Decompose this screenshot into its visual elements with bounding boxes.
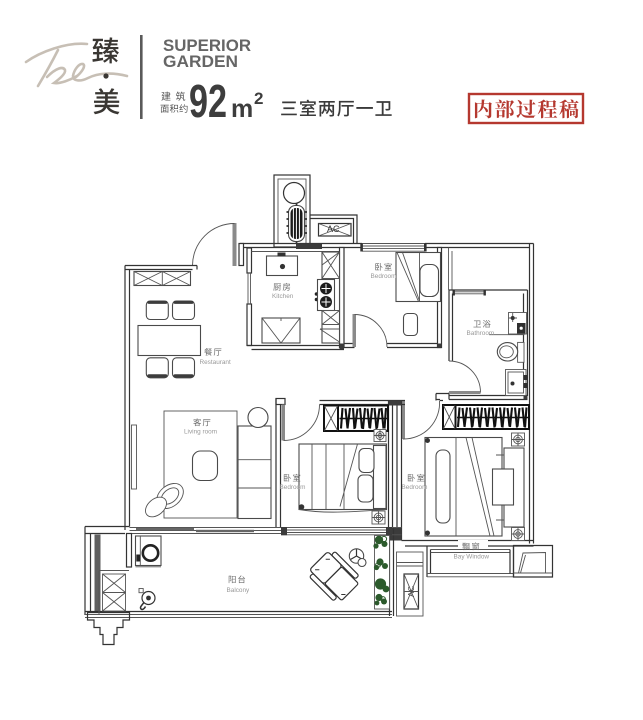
svg-text:Balcony: Balcony [227,587,251,594]
svg-text:AC: AC [327,224,340,234]
svg-text:AC: AC [407,586,416,597]
svg-text:Bathroom: Bathroom [467,330,495,337]
svg-text:Bay Window: Bay Window [454,554,490,561]
svg-text:Kitchen: Kitchen [272,293,294,300]
svg-text:Bedroom: Bedroom [371,273,397,280]
svg-text:Bedroom: Bedroom [402,484,428,491]
svg-text:Living room: Living room [184,429,217,436]
svg-text:Restaurant: Restaurant [200,359,231,366]
svg-text:Bedroom: Bedroom [280,484,306,491]
